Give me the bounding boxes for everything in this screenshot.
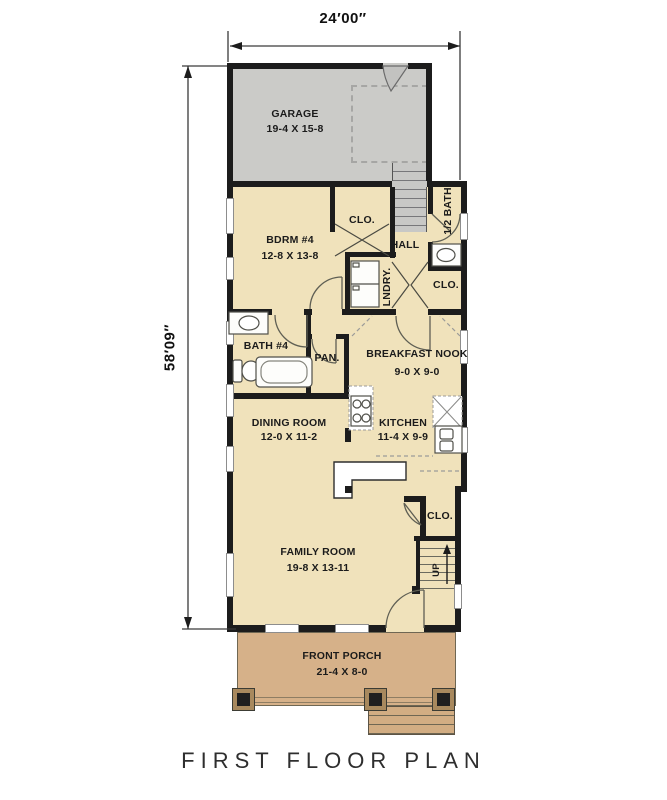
- wall-garage-bottom: [227, 181, 392, 187]
- wall-pantry-right: [344, 334, 349, 398]
- bath4-label: BATH #4: [226, 340, 306, 352]
- garage-door-gap: [383, 63, 408, 69]
- dim-width-label: 24′00″: [248, 10, 438, 27]
- window-family-bottom-a: [265, 624, 299, 633]
- halfbath-label: 1/2 BATH: [442, 176, 454, 246]
- kitchen-label: KITCHEN: [343, 417, 463, 429]
- wall-bath-bottom: [227, 393, 349, 399]
- window-bdrm4: [226, 198, 234, 234]
- dim-arrow-top-right: [448, 42, 460, 50]
- porch-column-left: [233, 689, 254, 710]
- window-dining-b: [226, 446, 234, 472]
- porch-size: 21-4 X 8-0: [272, 666, 412, 678]
- wall-garage-right: [426, 63, 432, 187]
- dim-arrow-left-bottom: [184, 617, 192, 629]
- porch-steps: [368, 706, 455, 735]
- porch-column-middle: [365, 689, 386, 710]
- wall-pantry-top-a: [306, 334, 312, 339]
- dining-label: DINING ROOM: [229, 417, 349, 429]
- wall-stair-foot: [412, 586, 420, 594]
- bdrm4-closet-label: CLO.: [336, 214, 388, 226]
- wall-halfbath-bottom: [428, 266, 461, 271]
- pantry-label: PAN.: [303, 352, 351, 364]
- wall-laundry-top: [345, 252, 396, 257]
- hall-label: HALL: [380, 239, 430, 251]
- plan-title: FIRST FLOOR PLAN: [0, 748, 667, 774]
- family-label: FAMILY ROOM: [253, 546, 383, 558]
- garage-stairs: [392, 163, 427, 232]
- floor-plan-sheet: 24′00″ 58′09″ GARAGE 19-4 X 15-8 BDRM #4…: [0, 0, 667, 800]
- wall-halfbath-left-a: [428, 187, 433, 214]
- kitchen-size: 11-4 X 9-9: [343, 431, 463, 443]
- window-halfbath: [460, 213, 468, 240]
- wall-mid-d: [428, 309, 461, 315]
- wall-closet-left: [330, 187, 335, 232]
- window-stairs: [454, 584, 462, 609]
- window-family-left: [226, 553, 234, 597]
- dim-height-label: 58′09″: [162, 303, 179, 393]
- garage-dashed-outline: [351, 85, 428, 163]
- wall-entry-closet-bottom: [414, 536, 461, 541]
- porch-label: FRONT PORCH: [272, 650, 412, 662]
- dim-arrow-top-left: [230, 42, 242, 50]
- front-door-gap: [386, 625, 424, 632]
- wall-stair-stringer: [416, 541, 420, 592]
- dim-arrow-left-top: [184, 66, 192, 78]
- bdrm4-label: BDRM #4: [230, 234, 350, 246]
- window-family-bottom-b: [335, 624, 369, 633]
- wall-garage-top-left: [227, 63, 383, 69]
- hall-closet-label: CLO.: [424, 279, 468, 291]
- laundry-label: LNDRY.: [381, 259, 393, 315]
- stairs-up-label: UP: [431, 555, 443, 585]
- window-dining-a: [226, 384, 234, 417]
- stairs-gap: [392, 181, 427, 187]
- garage-label: GARAGE: [235, 108, 355, 120]
- porch-column-right: [433, 689, 454, 710]
- nook-size: 9-0 X 9-0: [352, 366, 482, 378]
- garage-size: 19-4 X 15-8: [235, 123, 355, 135]
- nook-label: BREAKFAST NOOK: [352, 348, 482, 360]
- entry-closet-label: CLO.: [414, 510, 466, 522]
- dining-size: 12-0 X 11-2: [229, 431, 349, 443]
- family-size: 19-8 X 13-11: [253, 562, 383, 574]
- wall-mid-a: [227, 309, 272, 315]
- bdrm4-size: 12-8 X 13-8: [230, 250, 350, 262]
